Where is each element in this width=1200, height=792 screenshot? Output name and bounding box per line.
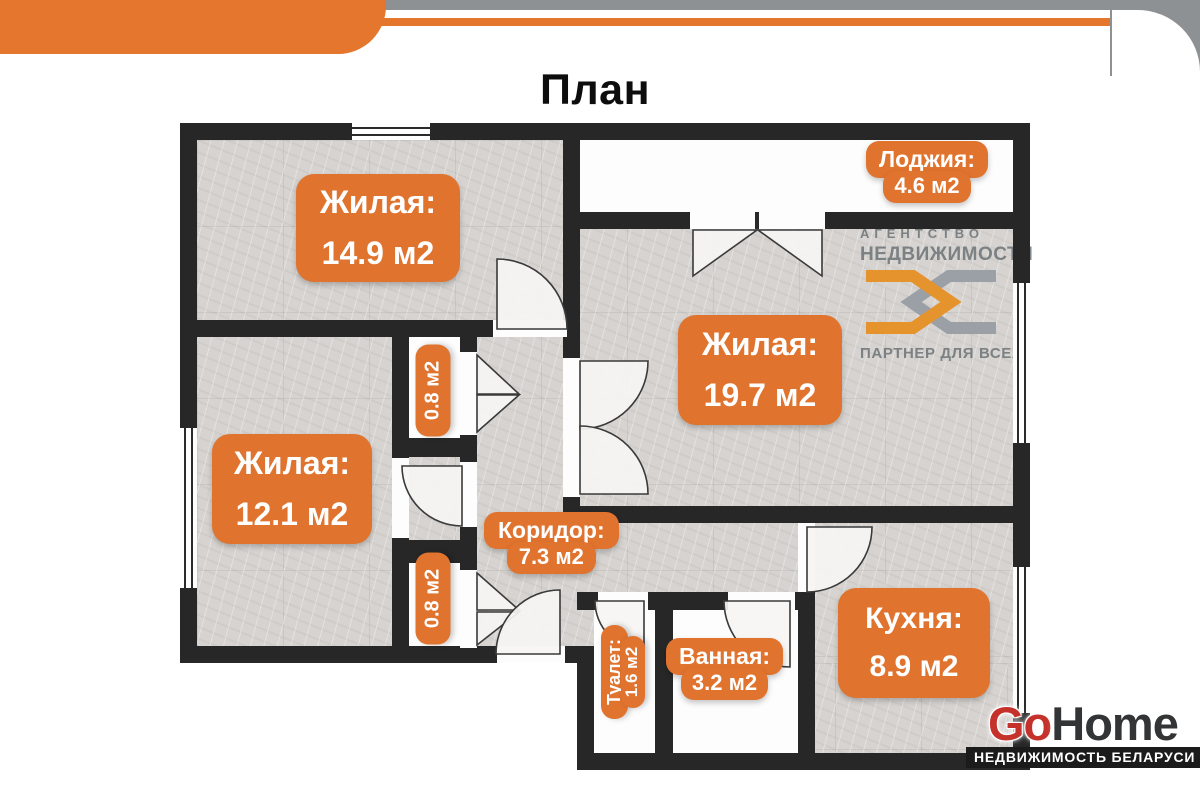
room-label-loggia: Лоджия: 4.6 м2	[866, 141, 988, 203]
room-label-corridor: Коридор: 7.3 м2	[484, 512, 619, 574]
gohome-logo: GoHome	[988, 696, 1178, 751]
door-arc-kitchen	[807, 527, 872, 592]
room-label-living2: Жилая: 19.7 м2	[678, 315, 842, 425]
room-label-living3-area: 12.1 м2	[236, 489, 349, 540]
door-arc-living1	[497, 259, 567, 329]
room-label-living2-name: Жилая:	[702, 319, 818, 370]
room-label-living3-name: Жилая:	[234, 438, 350, 489]
gohome-logo-go: Go	[988, 697, 1051, 750]
room-label-living1: Жилая: 14.9 м2	[296, 174, 460, 282]
page: План	[0, 0, 1200, 792]
room-label-living3: Жилая: 12.1 м2	[212, 434, 372, 544]
room-label-living1-name: Жилая:	[320, 177, 436, 228]
door-leaf-balcony-left	[693, 230, 757, 276]
room-label-toilet-area: 1.6 м2	[621, 636, 645, 708]
gohome-logo-tagline: НЕДВИЖИМОСТЬ БЕЛАРУСИ	[966, 747, 1200, 768]
room-label-living2-area: 19.7 м2	[704, 370, 817, 421]
door-swings-layer	[0, 0, 1200, 792]
room-label-living1-area: 14.9 м2	[322, 228, 435, 279]
room-label-kitchen-name: Кухня:	[865, 595, 963, 643]
gohome-logo-home: Home	[1051, 697, 1178, 750]
door-arc-living2-upper	[580, 361, 648, 429]
room-label-kitchen-area: 8.9 м2	[870, 643, 959, 691]
room-label-loggia-area: 4.6 м2	[883, 171, 970, 203]
room-label-closet1: 0.8 м2	[416, 345, 451, 437]
door-leaf-balcony-right	[758, 230, 822, 276]
room-label-toilet: Туалет: 1.6 м2	[601, 606, 645, 738]
door-leaf-closet1-a	[477, 355, 519, 394]
room-label-kitchen: Кухня: 8.9 м2	[838, 588, 990, 698]
door-arc-niche	[402, 466, 462, 526]
room-label-bathroom: Ванная: 3.2 м2	[666, 638, 783, 700]
room-label-bathroom-area: 3.2 м2	[681, 668, 768, 700]
room-label-closet2: 0.8 м2	[416, 553, 451, 645]
door-arc-living2-lower	[580, 426, 648, 494]
room-label-corridor-area: 7.3 м2	[507, 542, 596, 574]
door-leaf-closet2-a	[477, 573, 519, 610]
door-leaf-closet1-b	[477, 395, 519, 432]
